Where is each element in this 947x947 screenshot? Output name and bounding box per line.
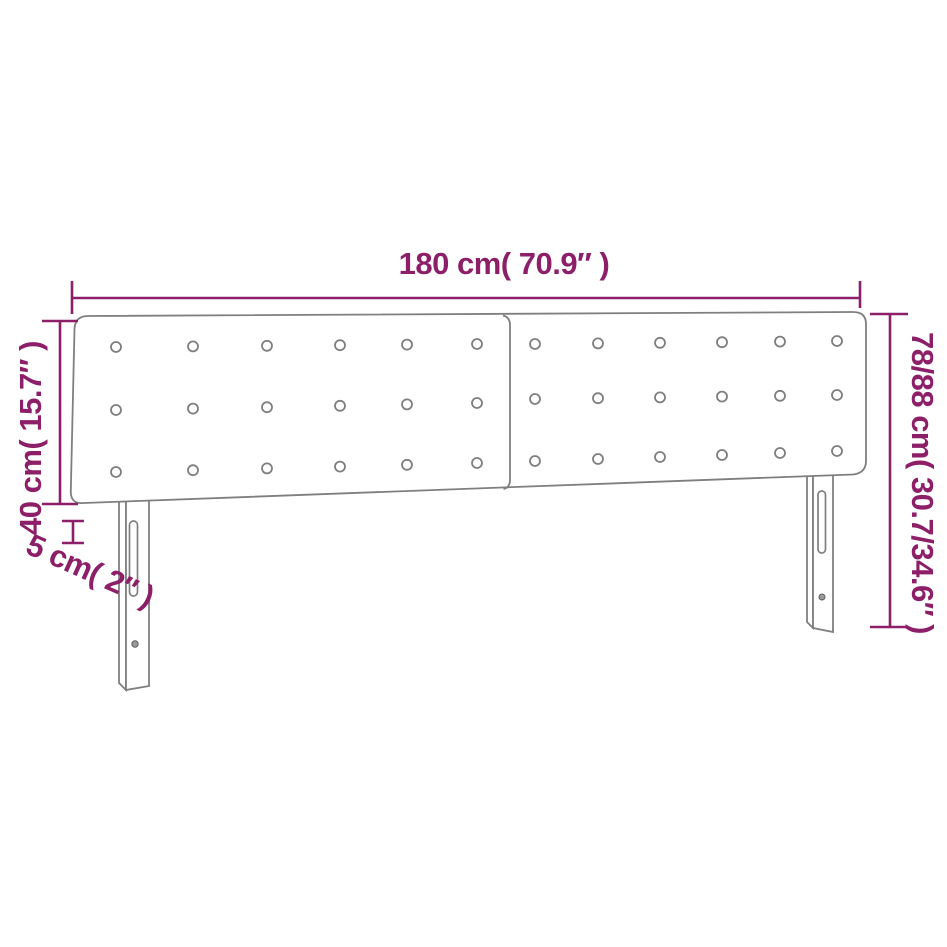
tufting-button: [472, 339, 482, 349]
right-leg: [807, 472, 833, 632]
tufting-button: [593, 338, 603, 348]
tufting-button: [717, 450, 727, 460]
product-diagram: 180 cm( 70.9″ ) 40 cm( 15.7″ ) 5 cm( 2″ …: [0, 0, 947, 947]
tufting-button: [402, 399, 412, 409]
tufting-button: [188, 341, 198, 351]
tufting-button: [335, 401, 345, 411]
total-height-dimension-line: [870, 314, 908, 627]
total-height-dimension-label: 78/88 cm( 30.7/34.6″ ): [904, 332, 940, 634]
tufting-button: [655, 338, 665, 348]
tufting-button: [832, 446, 842, 456]
tufting-button: [111, 467, 121, 477]
tufting-button: [832, 336, 842, 346]
tufting-button: [717, 392, 727, 402]
tufting-button: [335, 462, 345, 472]
tufting-button: [262, 463, 272, 473]
tufting-button: [472, 458, 482, 468]
tufting-button: [188, 404, 198, 414]
tufting-button: [593, 393, 603, 403]
right-leg-slot: [818, 491, 826, 553]
tufting-button: [111, 405, 121, 415]
tufting-button: [717, 337, 727, 347]
tufting-button: [402, 460, 412, 470]
tufting-button: [655, 452, 665, 462]
diagram-canvas: [0, 0, 947, 947]
right-leg-screw: [819, 594, 825, 600]
tufting-button: [472, 398, 482, 408]
tufting-button: [335, 340, 345, 350]
tufting-button: [262, 341, 272, 351]
left-leg-screw: [132, 641, 138, 647]
headboard: [71, 312, 866, 503]
tufting-button: [530, 394, 540, 404]
tufting-button: [593, 454, 603, 464]
tufting-button: [775, 391, 785, 401]
width-dimension-line: [72, 281, 860, 314]
tufting-button: [262, 402, 272, 412]
tufting-button: [530, 339, 540, 349]
tufting-button: [111, 342, 121, 352]
tufting-button: [655, 392, 665, 402]
tufting-button: [775, 448, 785, 458]
panel-height-dimension-label: 40 cm( 15.7″ ): [13, 341, 49, 535]
tufting-button: [530, 456, 540, 466]
tufting-button: [775, 337, 785, 347]
tufting-button: [832, 390, 842, 400]
tufting-button: [188, 465, 198, 475]
width-dimension-label: 180 cm( 70.9″ ): [399, 246, 610, 282]
tufting-button: [402, 340, 412, 350]
